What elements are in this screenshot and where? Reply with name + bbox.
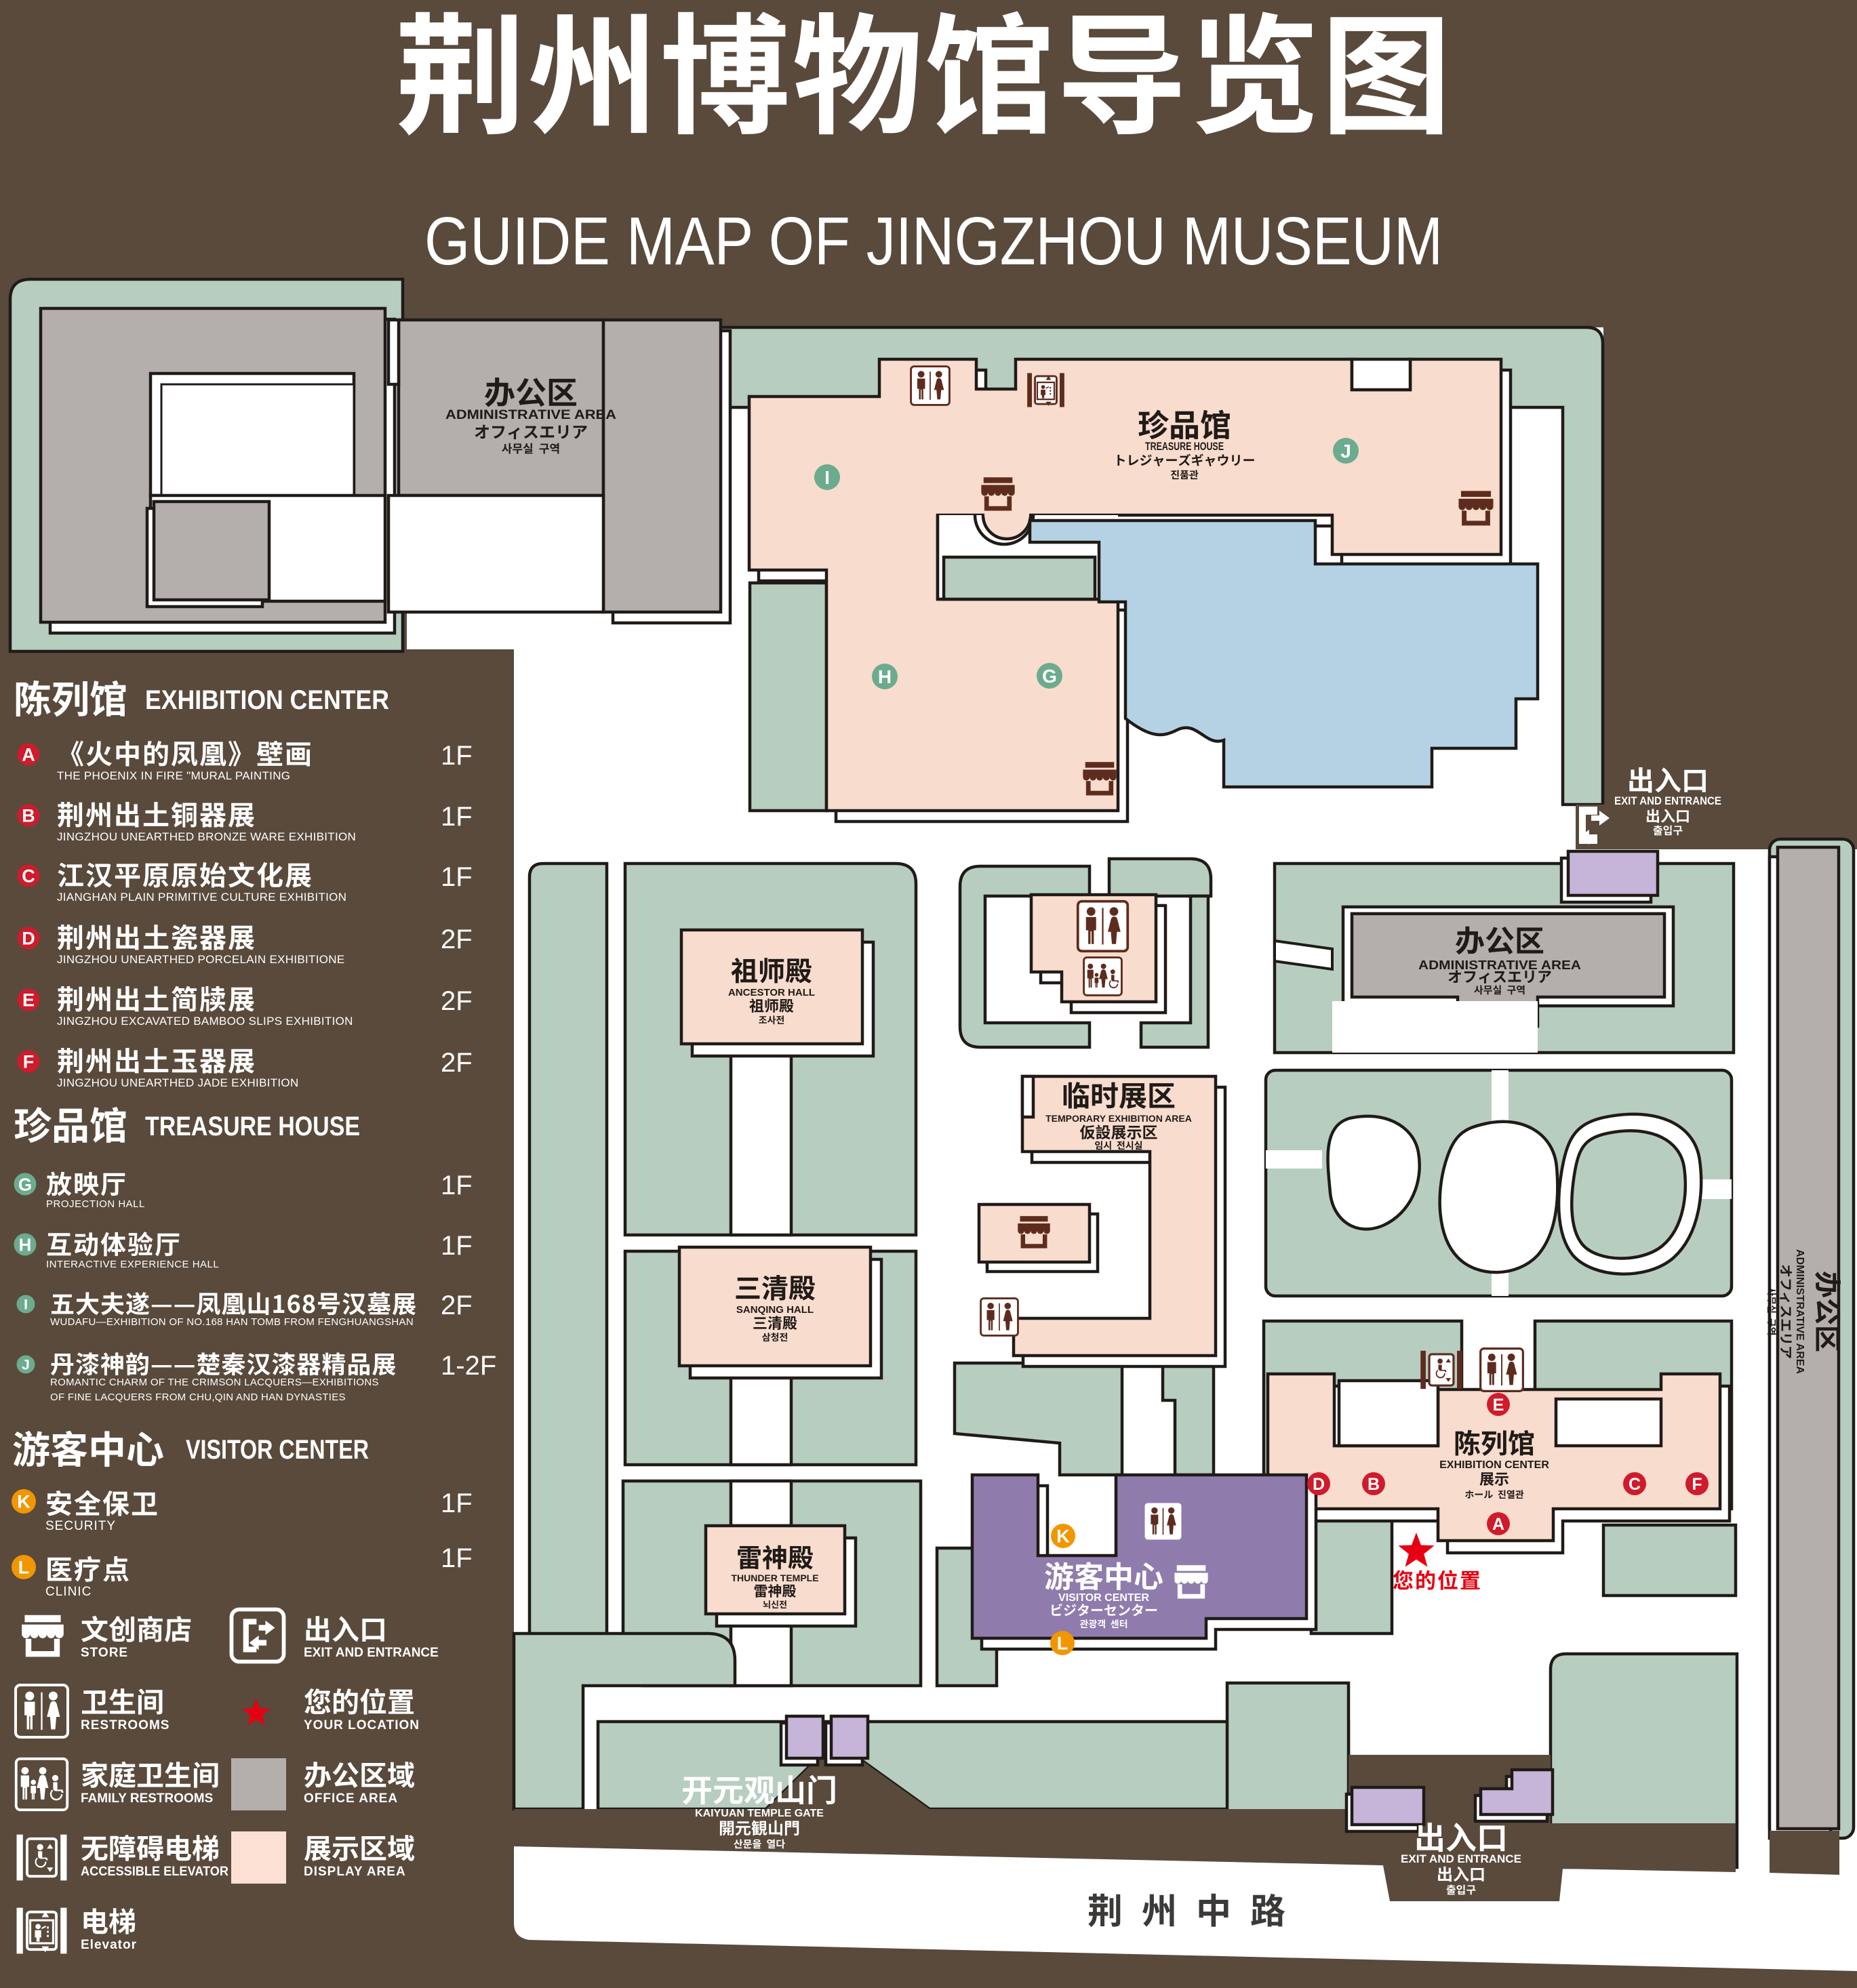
svg-text:JINGZHOU UNEARTHED PORCELAIN E: JINGZHOU UNEARTHED PORCELAIN EXHIBITIONE xyxy=(57,953,344,966)
svg-text:1F: 1F xyxy=(441,1231,473,1261)
svg-text:FAMILY RESTROOMS: FAMILY RESTROOMS xyxy=(81,1791,213,1806)
svg-text:THE PHOENIX IN FIRE "MURAL PAI: THE PHOENIX IN FIRE "MURAL PAINTING xyxy=(57,769,290,782)
svg-text:PROJECTION HALL: PROJECTION HALL xyxy=(46,1198,145,1210)
svg-text:EXIT AND ENTRANCE: EXIT AND ENTRANCE xyxy=(1614,794,1721,807)
svg-text:H: H xyxy=(878,666,892,687)
svg-text:OF FINE LACQUERS FROM CHU,QIN: OF FINE LACQUERS FROM CHU,QIN AND HAN DY… xyxy=(50,1392,346,1403)
svg-text:H: H xyxy=(19,1234,32,1255)
svg-text:D: D xyxy=(22,929,35,949)
svg-text:2F: 2F xyxy=(441,925,473,954)
svg-text:WUDAFU—EXHIBITION OF NO.168 HA: WUDAFU—EXHIBITION OF NO.168 HAN TOMB FRO… xyxy=(50,1316,414,1328)
svg-text:ADMINISTRATIVE AREA: ADMINISTRATIVE AREA xyxy=(445,408,616,422)
svg-text:JINGZHOU UNEARTHED JADE EXHIBI: JINGZHOU UNEARTHED JADE EXHIBITION xyxy=(57,1076,299,1089)
svg-text:ADMINISTRATIVE AREA: ADMINISTRATIVE AREA xyxy=(1418,958,1581,972)
svg-text:STORE: STORE xyxy=(81,1646,128,1660)
svg-text:J: J xyxy=(22,1358,30,1373)
svg-text:SANQING HALL: SANQING HALL xyxy=(736,1304,814,1316)
svg-text:EXHIBITION CENTER: EXHIBITION CENTER xyxy=(145,685,389,715)
svg-text:1F: 1F xyxy=(441,1488,473,1518)
svg-text:K: K xyxy=(17,1492,31,1512)
svg-text:I: I xyxy=(24,1297,28,1313)
svg-text:F: F xyxy=(1692,1475,1702,1494)
svg-text:JINGZHOU UNEARTHED BRONZE WARE: JINGZHOU UNEARTHED BRONZE WARE EXHIBITIO… xyxy=(57,830,356,843)
svg-text:I: I xyxy=(824,467,830,488)
svg-text:ADMINISTRATIVE AREA: ADMINISTRATIVE AREA xyxy=(1794,1249,1805,1374)
svg-text:VISITOR CENTER: VISITOR CENTER xyxy=(1058,1592,1149,1604)
svg-text:JIANGHAN PLAIN PRIMITIVE CULTU: JIANGHAN PLAIN PRIMITIVE CULTURE EXHIBIT… xyxy=(57,891,346,904)
svg-text:C: C xyxy=(1629,1475,1641,1494)
svg-text:TEMPORARY EXHIBITION AREA: TEMPORARY EXHIBITION AREA xyxy=(1045,1113,1192,1124)
svg-text:2F: 2F xyxy=(441,986,473,1016)
svg-text:GUIDE MAP OF JINGZHOU MUSEUM: GUIDE MAP OF JINGZHOU MUSEUM xyxy=(424,203,1443,279)
svg-text:G: G xyxy=(1042,666,1057,687)
svg-text:F: F xyxy=(23,1052,35,1072)
svg-text:CLINIC: CLINIC xyxy=(45,1585,92,1599)
svg-text:A: A xyxy=(1492,1515,1504,1534)
svg-text:RESTROOMS: RESTROOMS xyxy=(81,1718,169,1732)
svg-text:EXIT AND ENTRANCE: EXIT AND ENTRANCE xyxy=(304,1646,439,1660)
svg-text:ROMANTIC CHARM OF THE CRIMSON: ROMANTIC CHARM OF THE CRIMSON LACQUERS—E… xyxy=(50,1377,379,1388)
svg-text:E: E xyxy=(22,990,35,1011)
svg-text:SECURITY: SECURITY xyxy=(45,1519,116,1533)
svg-text:1F: 1F xyxy=(441,802,473,832)
svg-text:2F: 2F xyxy=(441,1291,473,1320)
svg-text:L: L xyxy=(1057,1634,1069,1654)
svg-text:1F: 1F xyxy=(441,1543,473,1573)
svg-text:DISPLAY AREA: DISPLAY AREA xyxy=(304,1865,406,1879)
svg-text:D: D xyxy=(1313,1475,1325,1494)
svg-text:L: L xyxy=(18,1558,30,1578)
svg-text:EXIT AND ENTRANCE: EXIT AND ENTRANCE xyxy=(1401,1852,1521,1865)
svg-text:TREASURE HOUSE: TREASURE HOUSE xyxy=(1145,440,1224,453)
svg-text:E: E xyxy=(1493,1396,1504,1415)
svg-text:C: C xyxy=(22,866,35,887)
svg-text:K: K xyxy=(1056,1526,1070,1547)
svg-text:YOUR LOCATION: YOUR LOCATION xyxy=(304,1718,420,1732)
svg-text:TREASURE HOUSE: TREASURE HOUSE xyxy=(145,1112,360,1141)
svg-text:INTERACTIVE EXPERIENCE HALL: INTERACTIVE EXPERIENCE HALL xyxy=(46,1259,219,1270)
svg-text:THUNDER TEMPLE: THUNDER TEMPLE xyxy=(731,1573,818,1583)
svg-text:1F: 1F xyxy=(441,862,473,892)
svg-text:1F: 1F xyxy=(441,741,473,771)
svg-text:ANCESTOR HALL: ANCESTOR HALL xyxy=(728,987,815,998)
svg-text:1F: 1F xyxy=(441,1171,473,1200)
svg-text:ACCESSIBLE ELEVATOR: ACCESSIBLE ELEVATOR xyxy=(81,1865,228,1879)
svg-text:G: G xyxy=(18,1174,32,1194)
svg-text:JINGZHOU EXCAVATED BAMBOO SLIP: JINGZHOU EXCAVATED BAMBOO SLIPS EXHIBITI… xyxy=(57,1015,353,1028)
svg-text:VISITOR CENTER: VISITOR CENTER xyxy=(186,1435,369,1465)
svg-text:2F: 2F xyxy=(441,1048,473,1078)
svg-text:B: B xyxy=(1367,1475,1380,1494)
svg-text:EXHIBITION CENTER: EXHIBITION CENTER xyxy=(1439,1459,1549,1471)
svg-text:OFFICE AREA: OFFICE AREA xyxy=(304,1791,398,1806)
svg-text:A: A xyxy=(22,745,35,765)
svg-text:KAIYUAN TEMPLE GATE: KAIYUAN TEMPLE GATE xyxy=(695,1808,824,1819)
svg-text:Elevator: Elevator xyxy=(81,1938,137,1952)
svg-text:J: J xyxy=(1340,441,1351,462)
svg-text:1-2F: 1-2F xyxy=(441,1351,496,1381)
svg-text:B: B xyxy=(22,806,35,826)
